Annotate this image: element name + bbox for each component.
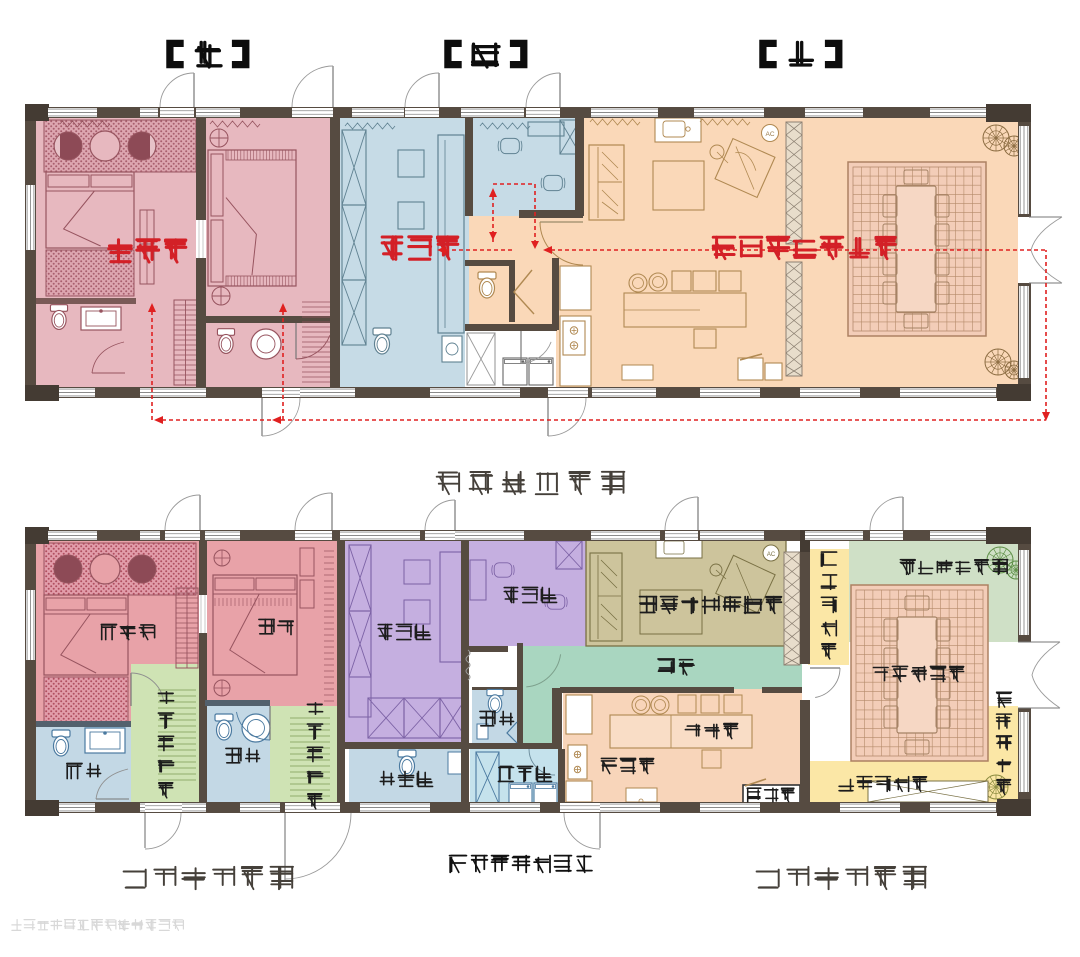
- svg-text:AC: AC: [767, 552, 776, 558]
- svg-text:AC: AC: [765, 131, 774, 138]
